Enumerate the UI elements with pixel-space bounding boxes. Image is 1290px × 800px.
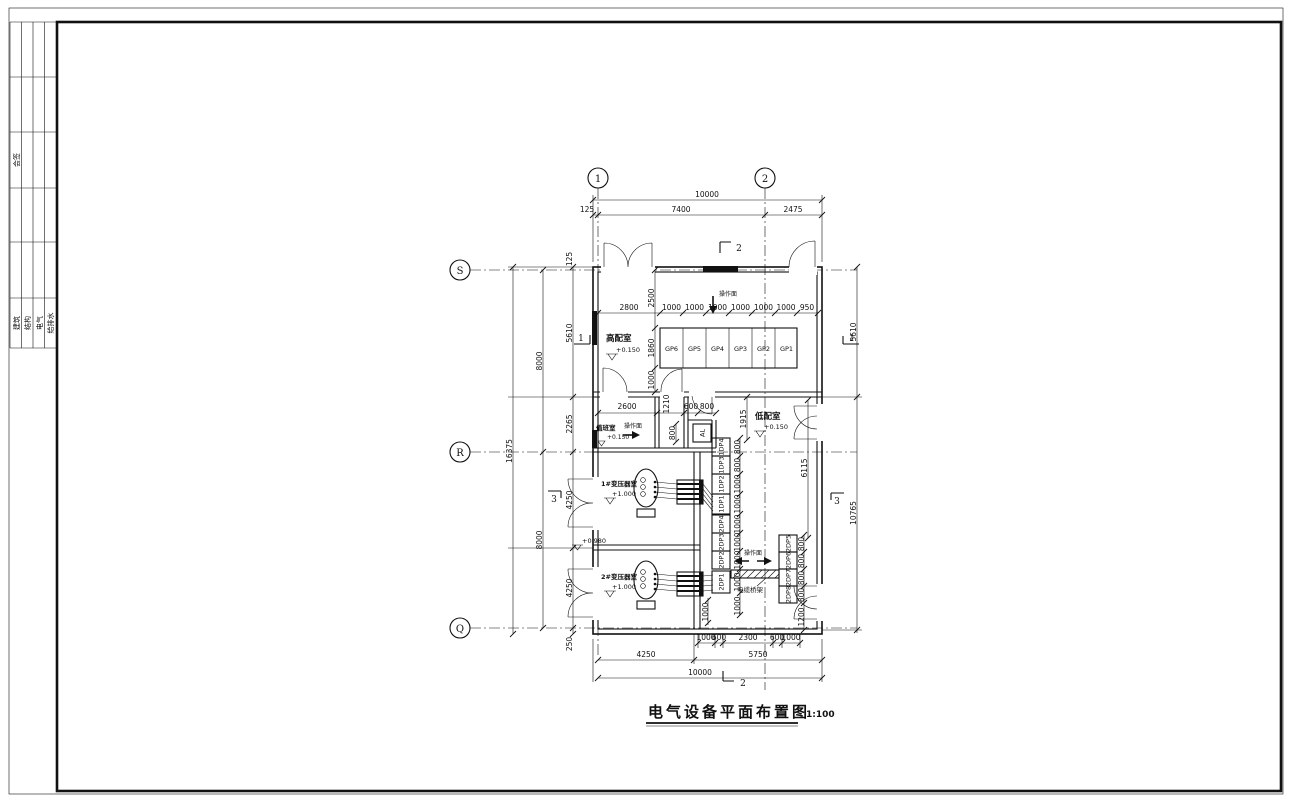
dim-left-125: 125 bbox=[565, 252, 574, 267]
dim-top-7400: 7400 bbox=[671, 205, 690, 214]
dim-bot-1000b: 1000 bbox=[781, 633, 800, 642]
elevation-icon bbox=[604, 591, 616, 597]
section-2-top: 2 bbox=[736, 244, 742, 254]
dim-dp: 1000 bbox=[733, 572, 742, 591]
op-face-label: 操作面 bbox=[719, 290, 737, 298]
dim-bot-2300: 2300 bbox=[738, 633, 757, 642]
elevation-icon bbox=[604, 498, 616, 504]
grid-bubble-1: 1 bbox=[595, 174, 601, 185]
window-top bbox=[703, 266, 738, 272]
dim-left-4250b: 4250 bbox=[565, 578, 574, 597]
dim-bot-4250: 4250 bbox=[636, 650, 655, 659]
sheet-frame: 会签 建筑 结构 电气 给排水 bbox=[9, 8, 1283, 794]
gp-panel-row: GP6 GP5 GP4 GP3 GP2 GP1 bbox=[660, 328, 797, 368]
panel-gp5: GP5 bbox=[688, 345, 701, 353]
dim-top-2475: 2475 bbox=[783, 205, 802, 214]
dim-dp: 1000 bbox=[733, 550, 742, 569]
panel-2dp7: 2DP7 bbox=[785, 569, 793, 586]
dim-dp: 1000 bbox=[733, 494, 742, 513]
window-hv-left bbox=[592, 311, 597, 345]
elevation-icon bbox=[598, 441, 605, 446]
al-box: AL bbox=[693, 424, 711, 442]
grid-bubble-R: R bbox=[456, 448, 464, 459]
dim-hv-1000: 1000 bbox=[754, 303, 773, 312]
op-face-label: 操作面 bbox=[744, 549, 762, 557]
room-hv-name: 高配室 bbox=[606, 333, 632, 344]
dim-left-8000a: 8000 bbox=[535, 351, 544, 370]
dim-hv-1860: 1860 bbox=[647, 338, 656, 357]
dim-dp: 1000 bbox=[733, 474, 742, 493]
drawing-sheet: 会签 建筑 结构 电气 给排水 1 2 S R Q bbox=[0, 0, 1290, 800]
dim-hv-1000: 1000 bbox=[662, 303, 681, 312]
elevation-icon bbox=[606, 354, 618, 360]
dim-left-8000b: 8000 bbox=[535, 530, 544, 549]
dim-left-4250a: 4250 bbox=[565, 490, 574, 509]
section-3-right: 3 bbox=[834, 497, 840, 507]
drawing-scale: 1:100 bbox=[806, 710, 835, 720]
panel-gp6: GP6 bbox=[665, 345, 678, 353]
dim-band-2600: 2600 bbox=[617, 402, 636, 411]
right-arrow-icon bbox=[632, 431, 640, 439]
panel-2dp4: 2DP4 bbox=[718, 515, 726, 532]
dim-bot-5750: 5750 bbox=[748, 650, 767, 659]
drawing-title-text: 电气设备平面布置图 bbox=[648, 703, 810, 721]
dim-dp2: 800 bbox=[797, 537, 806, 552]
section-3-left: 3 bbox=[551, 495, 557, 505]
dim-band-1210: 1210 bbox=[662, 394, 671, 413]
dim-band-800: 800 bbox=[700, 402, 715, 411]
window-duty-left bbox=[592, 430, 597, 448]
transformer-1 bbox=[634, 469, 713, 517]
dim-band-600: 600 bbox=[684, 402, 699, 411]
dim-dp2: 800 bbox=[797, 554, 806, 569]
dim-top-125: 125 bbox=[580, 205, 595, 214]
dim-lv-1915: 1915 bbox=[739, 409, 748, 428]
panel-2dp8: 2DP8 bbox=[785, 586, 793, 603]
cad-canvas: 会签 建筑 结构 电气 给排水 1 2 S R Q bbox=[0, 0, 1290, 800]
dim-hv-2500: 2500 bbox=[647, 288, 656, 307]
grid-bubble-2: 2 bbox=[762, 174, 768, 185]
dim-dp: 800 bbox=[733, 458, 742, 473]
panel-gp1: GP1 bbox=[780, 345, 793, 353]
dim-dp2: 800 bbox=[797, 588, 806, 603]
grid-bubble-S: S bbox=[457, 266, 464, 277]
dim-hv-1000: 1000 bbox=[776, 303, 795, 312]
titleblock-discipline-elec: 电气 bbox=[35, 316, 44, 330]
room-duty-elev: +0.150 bbox=[607, 434, 629, 441]
room-labels: 高配室 +0.150 值班室 +0.150 低配室 +0.150 1#变压器室 … bbox=[572, 333, 788, 597]
wall-elev-label: +0.980 bbox=[582, 537, 606, 545]
dim-bot-600a: 600 bbox=[712, 633, 727, 642]
panel-2dp6: 2DP6 bbox=[785, 552, 793, 569]
title-block-grid bbox=[10, 22, 57, 348]
grid-bubbles: 1 2 S R Q bbox=[450, 168, 775, 638]
panel-gp3: GP3 bbox=[734, 345, 747, 353]
panel-1dp1: 1DP1 bbox=[718, 495, 726, 512]
room-t2-name: 2#变压器室 bbox=[601, 572, 637, 581]
dim-hv-2800: 2800 bbox=[619, 303, 638, 312]
dim-duty-800: 800 bbox=[668, 426, 677, 441]
dim-left-5610: 5610 bbox=[565, 323, 574, 342]
dp-panel-column: 1DP4 1DP3 1DP2 1DP1 2DP4 2DP3 2DP2 2DP1 bbox=[712, 438, 730, 593]
room-t1-elev: +1.000 bbox=[612, 490, 636, 498]
dim-hv-1000: 1000 bbox=[708, 303, 727, 312]
dim-dp2-1200: 1200 bbox=[797, 607, 806, 626]
dim-inner-1000: 1000 bbox=[701, 602, 710, 621]
dim-dp: 1000 bbox=[733, 596, 742, 615]
dim-dp: 1000 bbox=[733, 532, 742, 551]
room-hv-elev: +0.150 bbox=[616, 346, 640, 354]
dim-overall-height: 16375 bbox=[505, 439, 514, 463]
right-arrow-icon bbox=[764, 557, 772, 565]
dim-hv-1000: 1000 bbox=[685, 303, 704, 312]
grid-bubble-Q: Q bbox=[456, 624, 464, 635]
dim-hv-1000b: 1000 bbox=[647, 370, 656, 389]
dim-lv-6115: 6115 bbox=[800, 458, 809, 477]
room-t1-name: 1#变压器室 bbox=[601, 479, 637, 488]
room-duty-name: 值班室 bbox=[596, 423, 616, 432]
dim-dp: 800 bbox=[733, 440, 742, 455]
panel-1dp2: 1DP2 bbox=[718, 475, 726, 492]
op-face-label: 操作面 bbox=[624, 422, 642, 430]
section-2-bottom: 2 bbox=[740, 679, 746, 689]
panel-2dp2: 2DP2 bbox=[718, 551, 726, 568]
elevation-icon bbox=[754, 431, 766, 437]
panel-gp2: GP2 bbox=[757, 345, 770, 353]
titleblock-discipline-arch: 建筑 bbox=[12, 316, 21, 330]
room-lv-name: 低配室 bbox=[754, 411, 781, 422]
dim-left-250: 250 bbox=[565, 637, 574, 652]
panel-1dp4: 1DP4 bbox=[718, 438, 726, 455]
dim-overall-width: 10000 bbox=[695, 190, 719, 199]
room-t2-elev: +1.000 bbox=[612, 583, 636, 591]
titleblock-discipline-struct: 结构 bbox=[23, 316, 32, 330]
section-1-left: 1 bbox=[578, 334, 584, 344]
dim-hv-1000: 1000 bbox=[731, 303, 750, 312]
room-lv-elev: +0.150 bbox=[764, 423, 788, 431]
drawing-title: 电气设备平面布置图 1:100 bbox=[646, 703, 835, 726]
dim-bot-10000: 10000 bbox=[688, 668, 712, 677]
titleblock-sign-label: 会签 bbox=[12, 153, 21, 167]
panel-al: AL bbox=[699, 429, 707, 437]
panel-gp4: GP4 bbox=[711, 345, 724, 353]
dim-dp: 1000 bbox=[733, 514, 742, 533]
panel-1dp3: 1DP3 bbox=[718, 456, 726, 473]
panel-2dp3: 2DP3 bbox=[718, 533, 726, 550]
titleblock-discipline-plumb: 给排水 bbox=[46, 313, 55, 334]
panel-2dp5: 2DP5 bbox=[785, 535, 793, 552]
panel-2dp1: 2DP1 bbox=[718, 573, 726, 590]
dim-left-2265: 2265 bbox=[565, 414, 574, 433]
dim-dp2: 800 bbox=[797, 571, 806, 586]
dp2-panel-column: 2DP5 2DP6 2DP7 2DP8 bbox=[779, 535, 797, 603]
transformer-2 bbox=[634, 561, 713, 609]
dim-hv-950: 950 bbox=[800, 303, 815, 312]
dim-right-10765: 10765 bbox=[849, 501, 858, 525]
dim-right-5610: 5610 bbox=[849, 322, 858, 341]
